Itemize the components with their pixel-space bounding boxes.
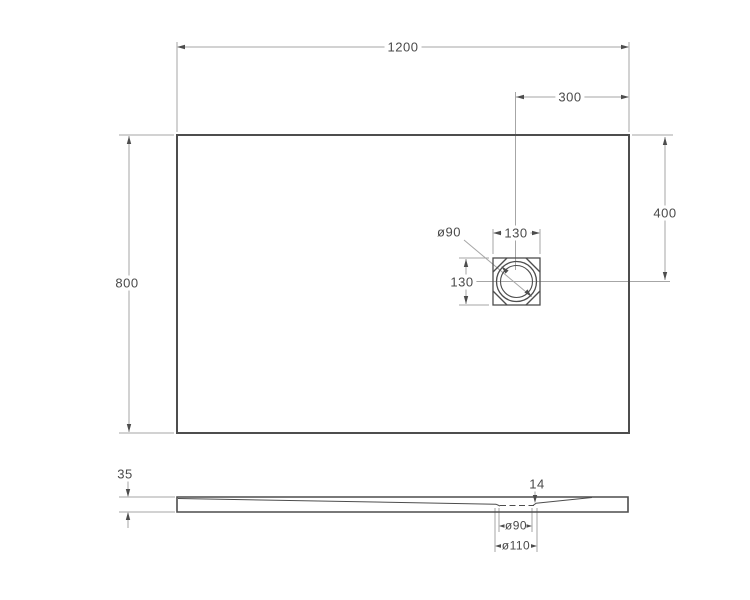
dim-drain-box-height-label: 130 [447, 275, 476, 290]
top-view-drawing [177, 135, 629, 433]
dim-drain-right-offset-label: 300 [555, 90, 584, 105]
dim-height-label: 800 [112, 276, 141, 291]
technical-drawing-shower-tray: 1200 300 800 400 130 130 ø90 35 14 ø90 ø… [0, 0, 750, 600]
dim-drain-box-width-label: 130 [501, 226, 530, 241]
dimension-lines [119, 42, 673, 552]
dim-drain-top-offset-label: 400 [650, 206, 679, 221]
tray-outline-top-view [177, 135, 629, 433]
dim-width-label: 1200 [385, 40, 422, 55]
dimension-arrowheads [126, 45, 667, 548]
dim-drain-diameter-label: ø90 [434, 225, 464, 240]
dim-edge-thickness-label: 35 [114, 467, 135, 482]
side-profile-drawing [177, 497, 628, 512]
drawing-lines [0, 0, 750, 600]
dim-drain-recess-diameter-label: ø110 [502, 539, 530, 554]
dim-drain-hole-diameter-label: ø90 [505, 519, 527, 534]
dim-drain-thickness-label: 14 [526, 477, 547, 492]
